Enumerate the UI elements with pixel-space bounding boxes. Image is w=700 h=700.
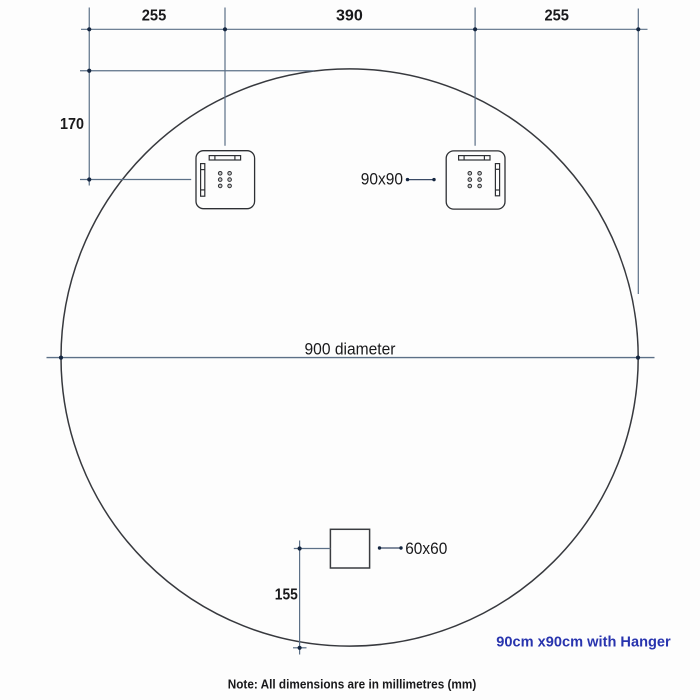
svg-text:Note: All dimensions are in mi: Note: All dimensions are in millimetres … — [228, 677, 477, 692]
svg-text:255: 255 — [544, 8, 569, 25]
svg-text:90x90: 90x90 — [361, 170, 403, 189]
svg-text:60x60: 60x60 — [405, 539, 447, 558]
svg-text:170: 170 — [60, 116, 84, 133]
svg-text:90cm x90cm with Hanger: 90cm x90cm with Hanger — [496, 634, 671, 651]
svg-text:255: 255 — [142, 8, 167, 25]
svg-text:155: 155 — [275, 587, 298, 604]
svg-text:900 diameter: 900 diameter — [305, 339, 396, 358]
svg-text:390: 390 — [336, 8, 363, 25]
